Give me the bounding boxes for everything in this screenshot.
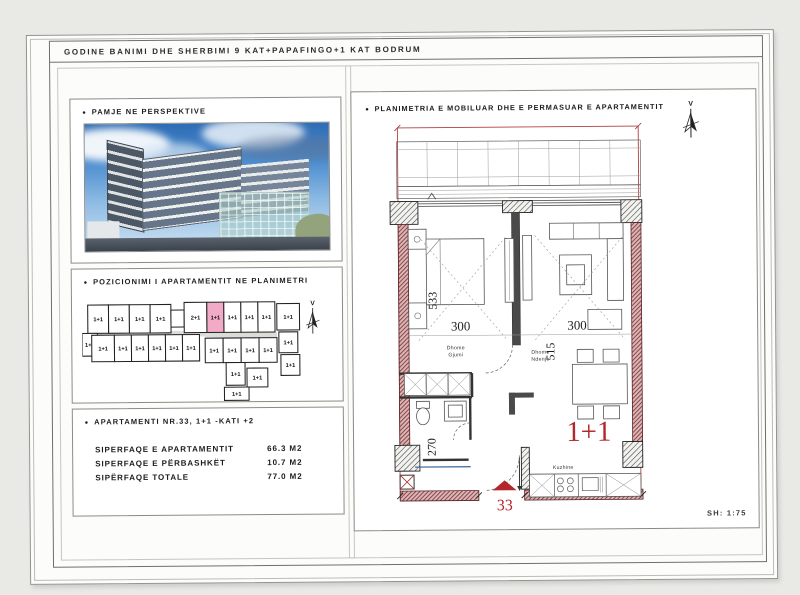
position-panel-title: • POZICIONIMI I APARTAMENTIT NE PLANIMET… xyxy=(84,276,308,287)
scale-label: SH: 1:75 xyxy=(707,508,747,517)
low-building xyxy=(88,221,120,240)
sofa xyxy=(549,223,623,239)
mini-plan-unit-label: 1+1 xyxy=(118,346,128,352)
apartment-number: 33 xyxy=(497,497,513,514)
bullet-icon: • xyxy=(365,106,369,112)
balcony xyxy=(396,140,640,199)
doors xyxy=(484,345,520,491)
perspective-panel: • PAMJE NE PERSPEKTIVE xyxy=(69,96,342,263)
mini-plan-unit-label: 1+1 xyxy=(152,346,162,352)
bullet-icon: • xyxy=(82,109,86,115)
area-value: 77.0 M2 xyxy=(267,472,329,481)
area-table: SIPERFAQE E APARTAMENTIT 66.3 M2 SIPERFA… xyxy=(95,444,329,488)
perspective-panel-title: • PAMJE NE PERSPEKTIVE xyxy=(82,107,206,117)
mini-floor-plan: 1+11+11+11+11+12+11+11+11+11+11+11+11+11… xyxy=(82,296,325,404)
area-value: 66.3 M2 xyxy=(267,444,329,453)
mini-plan-unit-label: 1+1 xyxy=(228,315,238,321)
mini-plan-unit-label: 1+1 xyxy=(253,376,263,382)
mini-plan-units-group: 1+11+11+11+11+12+11+11+11+11+11+11+11+11… xyxy=(82,302,300,402)
area-label: SIPERFAQE E APARTAMENTIT xyxy=(95,444,267,454)
dining-set xyxy=(572,349,627,419)
dim-bedroom-width: 300 xyxy=(451,318,471,333)
mini-plan-unit-label: 1+1 xyxy=(98,347,108,353)
bedroom-label: Gjumi xyxy=(448,352,463,358)
mini-plan-unit-label: 1+1 xyxy=(245,315,255,321)
apartment-title: APARTAMENTI NR.33, 1+1 -KATI +2 xyxy=(94,416,254,426)
table-row: SIPERFAQE E APARTAMENTIT 66.3 M2 xyxy=(95,444,329,455)
dark-cloud-shape xyxy=(236,135,331,161)
sheet-content: • PAMJE NE PERSPEKTIVE xyxy=(50,57,766,567)
bullet-icon: • xyxy=(84,279,88,285)
compass-label: V xyxy=(688,101,693,108)
north-arrow-icon: V xyxy=(683,101,699,138)
mini-plan-unit-label: 1+1 xyxy=(209,348,219,354)
table-row: SIPERFAQE E PËRBASHKËT 10.7 M2 xyxy=(95,458,329,469)
living-room-label: Dhome xyxy=(531,350,549,356)
sheet-frame: GODINE BANIMI DHE SHERBIMI 9 KAT+PAPAFIN… xyxy=(49,35,767,568)
mini-plan-unit-label: 1+1 xyxy=(114,317,124,323)
area-label: SIPËRFAQE TOTALE xyxy=(95,472,267,482)
mini-plan-unit-label: 1+1 xyxy=(284,340,294,346)
unit-type-label: 1+1 xyxy=(566,416,611,448)
apartment-info-title: • APARTAMENTI NR.33, 1+1 -KATI +2 xyxy=(85,416,254,426)
compass-label: V xyxy=(310,300,315,307)
ground-strip xyxy=(85,237,329,252)
armchair xyxy=(588,309,622,329)
mini-plan-unit-label: 1+1 xyxy=(263,348,273,354)
kitchen xyxy=(529,473,641,497)
mini-plan-unit-label: 1+1 xyxy=(169,346,179,352)
mini-plan-unit-label: 1+1 xyxy=(156,317,166,323)
building-side-facade xyxy=(107,140,144,233)
dim-living-width: 300 xyxy=(567,317,587,332)
area-value: 10.7 M2 xyxy=(267,458,329,467)
mini-plan-unit-label: 1+1 xyxy=(227,348,237,354)
perspective-label: PAMJE NE PERSPEKTIVE xyxy=(92,107,206,117)
mini-plan-unit-label: 1+1 xyxy=(135,317,145,323)
kitchen-label: Kuzhine xyxy=(553,465,574,471)
dining-table xyxy=(572,364,627,404)
mini-plan-unit-label: 1+1 xyxy=(245,348,255,354)
building-rendering xyxy=(84,122,331,253)
mini-plan-unit-label: 1+1 xyxy=(283,315,293,321)
mini-plan-unit xyxy=(171,310,184,327)
floor-plan-panel: • PLANIMETRIA E MOBILUAR DHE E PERMASUAR… xyxy=(350,88,759,531)
mini-plan-unit-label: 1+1 xyxy=(211,315,221,321)
bedroom-label: Dhome xyxy=(447,345,465,351)
dim-bedroom-depth: 533 xyxy=(425,292,439,310)
mini-plan-unit-label: 1+1 xyxy=(262,315,272,321)
floor-plan-drawing: V xyxy=(351,89,756,528)
bullet-icon: • xyxy=(85,419,89,425)
mini-plan-unit-label: 1+1 xyxy=(286,363,296,369)
north-arrow-icon: V xyxy=(306,300,319,333)
area-label: SIPERFAQE E PËRBASHKËT xyxy=(95,458,267,468)
mini-plan-unit-label: 2+1 xyxy=(191,316,201,322)
position-panel: • POZICIONIMI I APARTAMENTIT NE PLANIMET… xyxy=(71,266,344,403)
position-label: POZICIONIMI I APARTAMENTIT NE PLANIMETRI xyxy=(93,276,308,287)
mini-plan-unit-label: 1+1 xyxy=(186,346,196,352)
mini-plan-unit-label: 1+1 xyxy=(93,317,103,323)
mini-plan-unit-label: 1+1 xyxy=(135,346,145,352)
toilet xyxy=(416,401,429,408)
mini-plan-unit-label: 1+1 xyxy=(231,372,241,378)
living-room-label: Ndenje xyxy=(531,357,549,363)
entrance-marker: 33 xyxy=(493,480,517,514)
table-row: SIPËRFAQE TOTALE 77.0 M2 xyxy=(95,472,329,483)
tv-unit xyxy=(523,235,532,300)
mini-plan-unit-label: 1+1 xyxy=(232,392,242,398)
dim-hall: 270 xyxy=(425,438,439,456)
apartment-info-panel: • APARTAMENTI NR.33, 1+1 -KATI +2 SIPERF… xyxy=(72,406,345,516)
drawing-sheet: GODINE BANIMI DHE SHERBIMI 9 KAT+PAPAFIN… xyxy=(26,29,778,585)
